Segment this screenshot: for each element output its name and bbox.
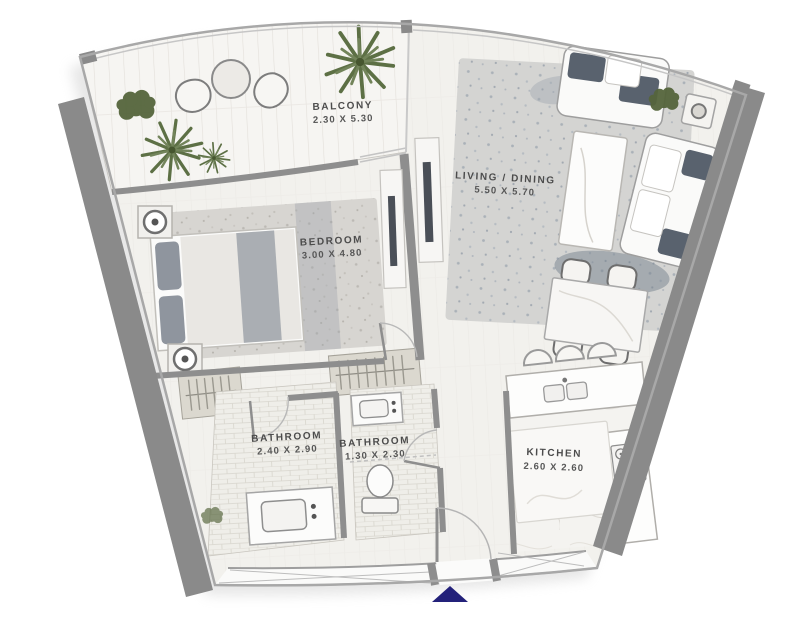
- wall-stub: [401, 20, 413, 34]
- tv-panel-living: [415, 138, 443, 263]
- floorplan-svg: BALCONY 2.30 X 5.30 LIVING / DINING 5.50…: [0, 0, 799, 641]
- bed-runner: [236, 230, 282, 342]
- vanity-sink: [351, 392, 403, 425]
- bed: [150, 227, 304, 351]
- wall: [434, 389, 437, 428]
- bathroom-main-region: [201, 382, 344, 556]
- dining-table: [544, 278, 648, 353]
- floorplan-canvas: BALCONY 2.30 X 5.30 LIVING / DINING 5.50…: [0, 0, 799, 641]
- sink-basin: [261, 499, 307, 532]
- bathroom-guest-region: [350, 384, 442, 540]
- bedroom-region: [138, 198, 387, 374]
- kitchen-label: KITCHEN: [526, 447, 582, 460]
- pillow: [158, 295, 185, 345]
- nightstand: [138, 206, 172, 238]
- tv-panel-bedroom: [380, 170, 406, 289]
- pillow: [155, 241, 182, 291]
- balcony-label: BALCONY: [312, 100, 373, 113]
- sink-basin: [359, 399, 388, 418]
- wall: [288, 394, 338, 398]
- nightstand: [168, 344, 202, 374]
- balcony-table: [212, 60, 250, 98]
- balcony-dimensions: 2.30 X 5.30: [313, 113, 374, 126]
- kitchen-dimensions: 2.60 X 2.60: [523, 461, 584, 474]
- sofa: [556, 45, 671, 129]
- side-table: [681, 93, 717, 129]
- vanity-sink: [246, 487, 335, 545]
- wall: [440, 468, 443, 532]
